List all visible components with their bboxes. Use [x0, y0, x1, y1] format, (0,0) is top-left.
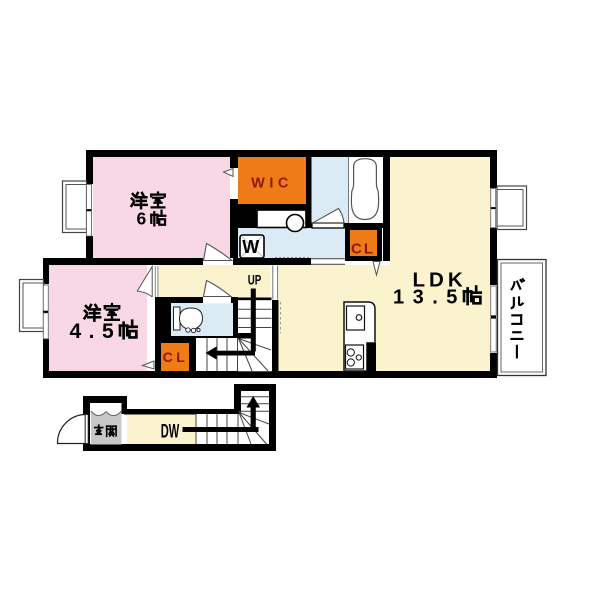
svg-text:UP: UP — [248, 272, 262, 287]
svg-text:CL: CL — [351, 241, 375, 258]
svg-text:WIC: WIC — [251, 176, 293, 192]
svg-text:DW: DW — [161, 422, 180, 443]
svg-text:CL: CL — [163, 349, 189, 365]
svg-text:W: W — [242, 237, 259, 257]
svg-text:13.5: 13.5 — [393, 287, 466, 309]
svg-text:6: 6 — [137, 209, 147, 229]
svg-text:4.5: 4.5 — [70, 320, 122, 343]
